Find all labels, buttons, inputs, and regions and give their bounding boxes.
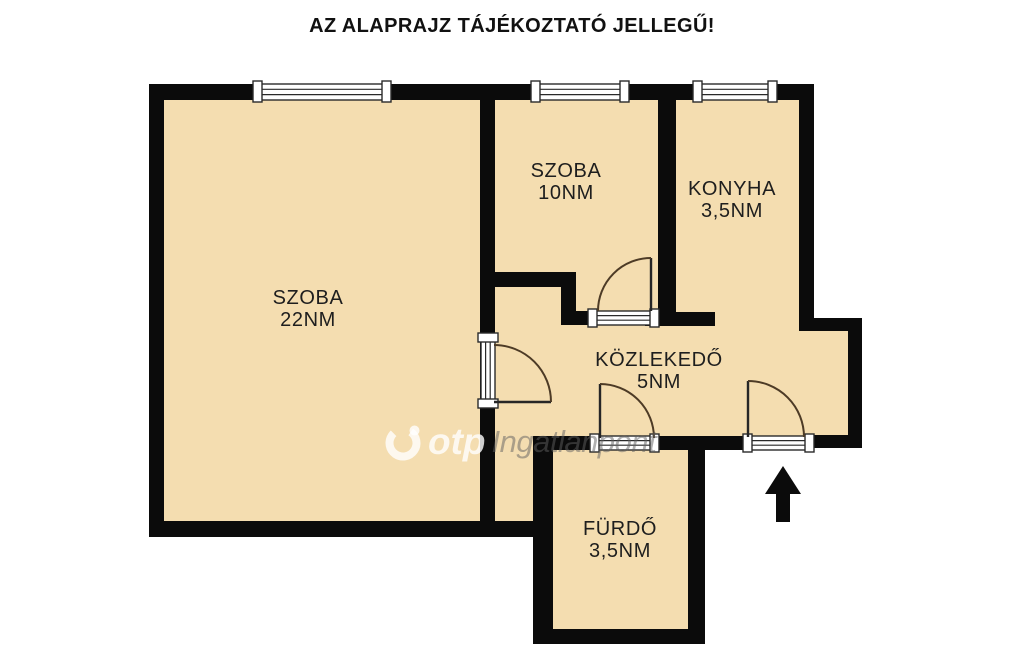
wall-corridor-bottom-mid bbox=[653, 436, 748, 450]
floorplan-canvas: AZ ALAPRAJZ TÁJÉKOZTATÓ JELLEGŰ! bbox=[0, 0, 1024, 662]
window-szoba-22 bbox=[253, 81, 391, 102]
threshold-szoba10-door bbox=[588, 309, 659, 327]
wall-furdo-bottom bbox=[533, 629, 705, 644]
room-label-szoba-22: SZOBA 22NM bbox=[208, 287, 408, 331]
wall-szoba22-right bbox=[480, 84, 495, 537]
wall-left bbox=[149, 84, 164, 537]
entrance-arrow-icon bbox=[765, 466, 801, 522]
wall-szoba10-step bbox=[561, 272, 576, 325]
room-label-konyha: KONYHA 3,5NM bbox=[632, 178, 832, 222]
wall-corridor-bottom-left bbox=[533, 436, 595, 450]
window-konyha bbox=[693, 81, 777, 102]
room-area: 3,5NM bbox=[632, 200, 832, 222]
room-label-kozlekedo: KÖZLEKEDŐ 5NM bbox=[559, 349, 759, 393]
room-area: 3,5NM bbox=[520, 540, 720, 562]
window-szoba-10 bbox=[531, 81, 629, 102]
wall-outer-right bbox=[848, 318, 862, 448]
room-name: SZOBA bbox=[208, 287, 408, 309]
wall-corridor-bottom-right bbox=[808, 435, 862, 448]
room-name: KÖZLEKEDŐ bbox=[559, 349, 759, 371]
floorplan-drawing bbox=[0, 0, 1024, 662]
room-name: FÜRDŐ bbox=[520, 518, 720, 540]
room-area: 5NM bbox=[559, 371, 759, 393]
room-label-furdo: FÜRDŐ 3,5NM bbox=[520, 518, 720, 562]
room-name: KONYHA bbox=[632, 178, 832, 200]
room-area: 22NM bbox=[208, 309, 408, 331]
